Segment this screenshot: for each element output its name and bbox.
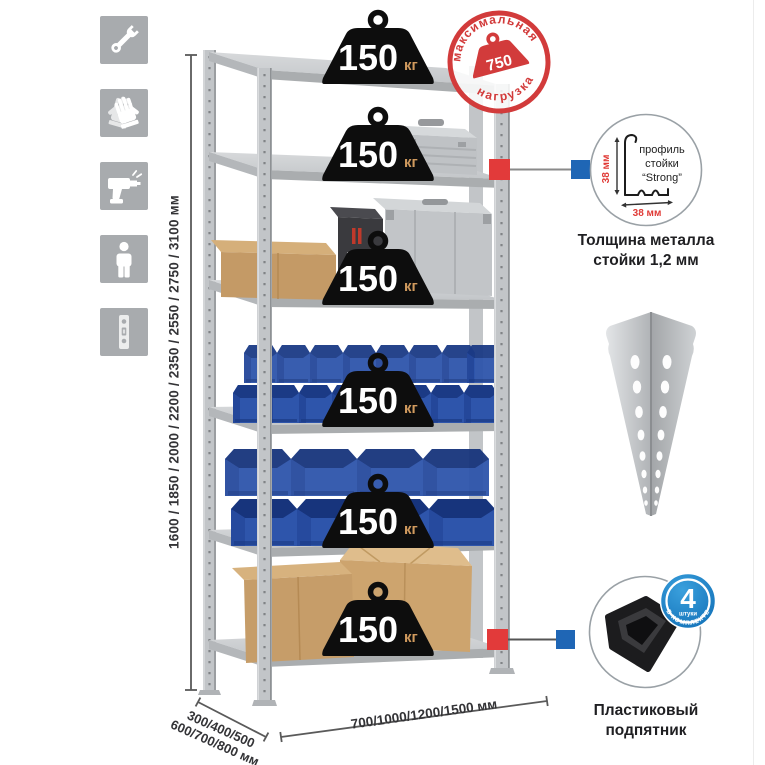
svg-text:150: 150	[338, 609, 398, 650]
svg-text:150: 150	[338, 134, 398, 175]
svg-text:кг: кг	[404, 154, 418, 171]
included-count-badge: 4 штуки В КОМПЛЕКТЕ	[658, 571, 718, 631]
post-profile-detail: 38 мм 38 мм профиль стойки “Strong”	[589, 113, 703, 227]
profile-dim-horizontal: 38 мм	[633, 208, 662, 219]
included-count: 4	[680, 583, 696, 614]
svg-text:кг: кг	[404, 400, 418, 417]
height-dimension-line	[185, 55, 197, 690]
svg-text:“Strong”: “Strong”	[642, 172, 682, 184]
included-unit: штуки	[679, 612, 697, 618]
max-load-stamp: максимальная нагрузка 750 кг	[439, 1, 559, 122]
svg-text:кг: кг	[404, 521, 418, 538]
page-edge-divider	[753, 0, 754, 765]
profile-dim-vertical: 38 мм	[601, 155, 612, 184]
callout-connector-top	[489, 159, 590, 180]
height-dimension-label: 1600 / 1850 / 2000 / 2200 / 2350 / 2550 …	[167, 195, 182, 549]
infographic-stage: 150 кг 150 кг 150 кг 150 кг	[0, 0, 765, 765]
foot-caption: Пластиковый подпятник	[566, 701, 726, 741]
foot-caption-line1: Пластиковый	[566, 701, 726, 721]
corner-post-photo	[596, 302, 712, 524]
svg-text:кг: кг	[404, 57, 418, 74]
foot-caption-line2: подпятник	[566, 721, 726, 741]
profile-caption-line2: стойки 1,2 мм	[566, 251, 726, 271]
svg-text:150: 150	[338, 37, 398, 78]
svg-text:профиль: профиль	[639, 144, 685, 156]
svg-text:стойки: стойки	[645, 158, 679, 170]
profile-caption: Толщина металла стойки 1,2 мм	[566, 231, 726, 271]
svg-text:150: 150	[338, 501, 398, 542]
profile-caption-line1: Толщина металла	[566, 231, 726, 251]
svg-text:150: 150	[338, 380, 398, 421]
profile-label: профиль стойки “Strong”	[639, 144, 685, 184]
shelf-load-badge: 150 кг	[322, 13, 434, 85]
svg-text:кг: кг	[404, 629, 418, 646]
callout-connector-bottom	[487, 629, 575, 650]
cardboard-box-shelf3	[211, 240, 336, 300]
svg-text:кг: кг	[404, 278, 418, 295]
shelf-load-badge: 150 кг	[322, 110, 434, 182]
svg-text:150: 150	[338, 258, 398, 299]
